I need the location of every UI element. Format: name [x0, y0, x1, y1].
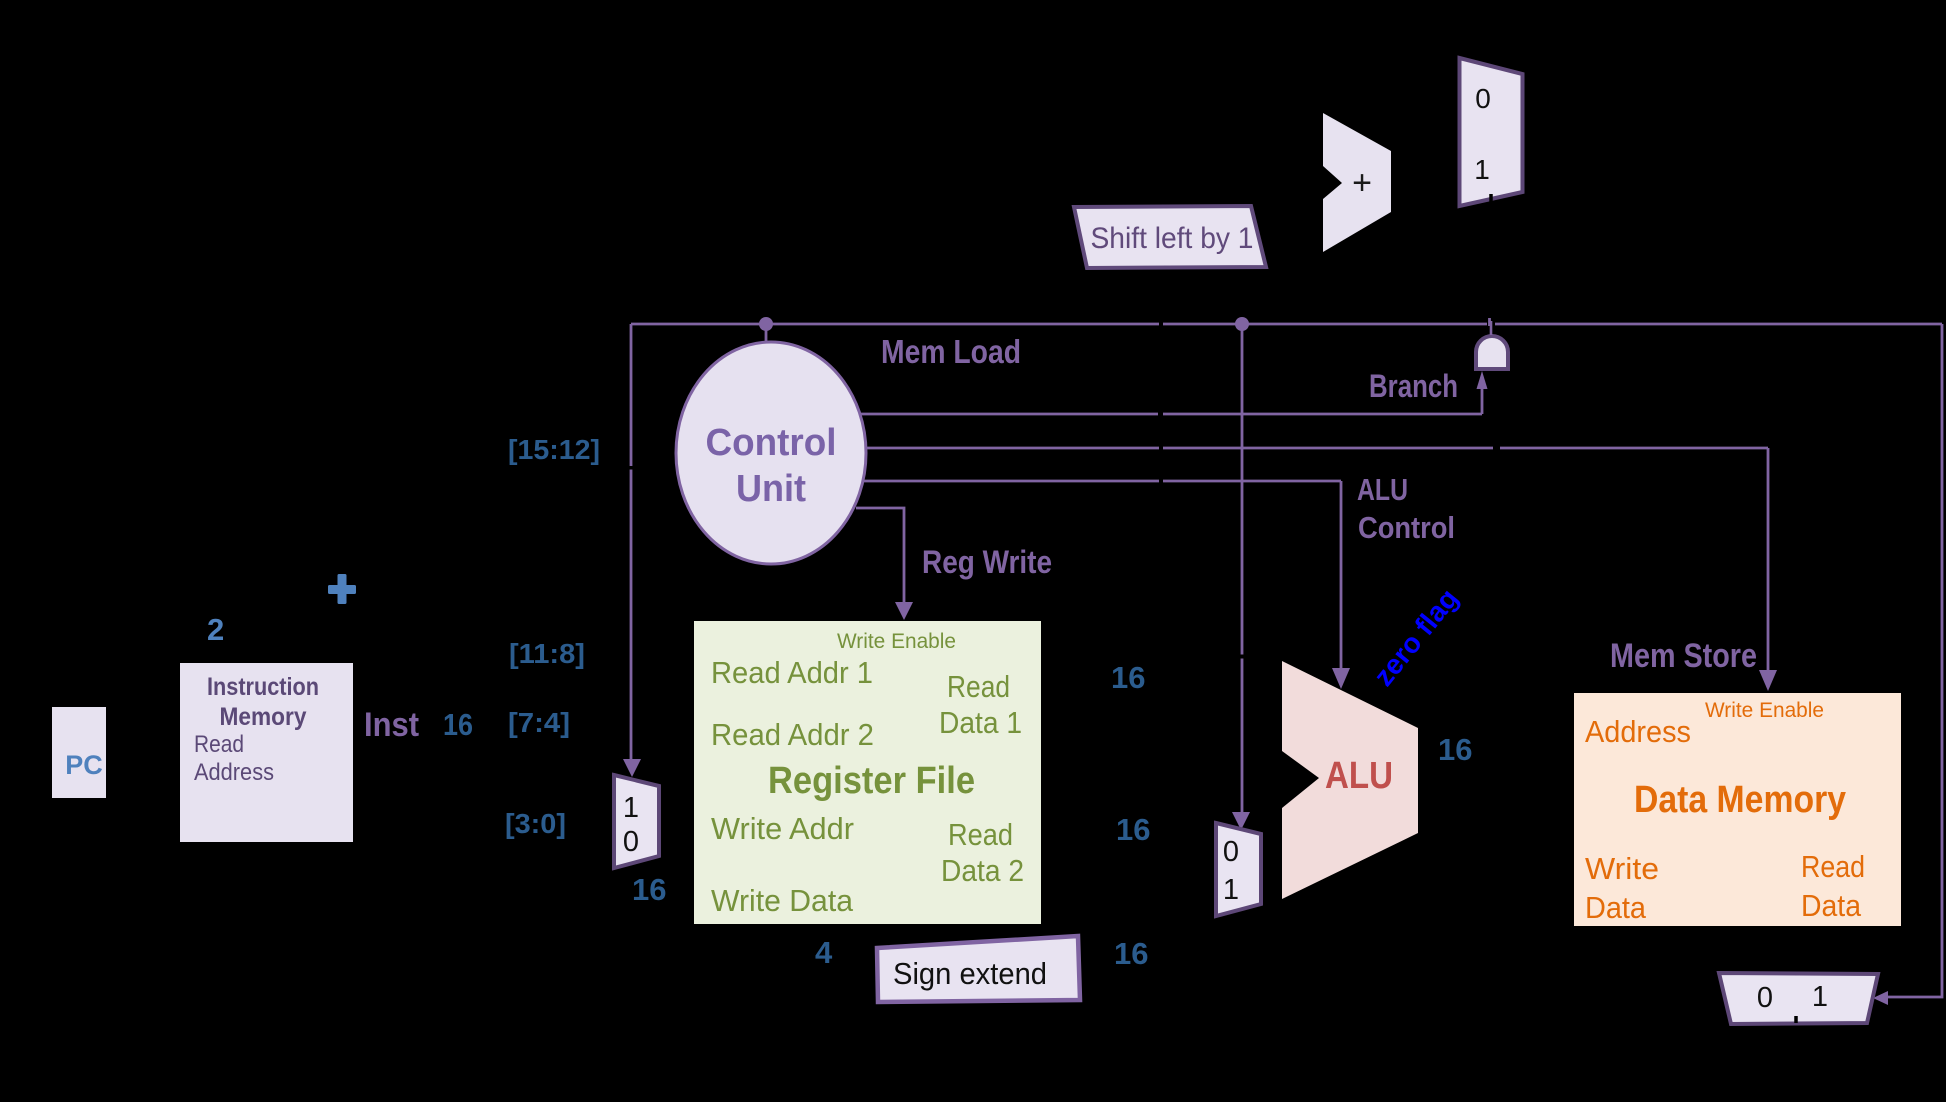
svg-text:Read: Read	[194, 731, 244, 758]
svg-text:0: 0	[623, 826, 639, 858]
svg-text:Mem Load: Mem Load	[881, 333, 1021, 370]
svg-text:0: 0	[1475, 83, 1491, 114]
svg-text:Data: Data	[1585, 890, 1647, 925]
svg-text:1: 1	[623, 792, 639, 824]
svg-text:Read: Read	[1801, 849, 1865, 884]
svg-text:Read: Read	[948, 817, 1013, 852]
svg-text:0: 0	[1757, 982, 1773, 1014]
svg-text:Register File: Register File	[768, 760, 975, 802]
svg-text:Data 2: Data 2	[941, 853, 1024, 888]
svg-text:Write Data: Write Data	[711, 883, 854, 918]
svg-text:Read: Read	[947, 669, 1010, 704]
svg-text:Read Addr 2: Read Addr 2	[711, 717, 874, 752]
svg-text:Read Addr 1: Read Addr 1	[711, 655, 873, 690]
svg-text:1: 1	[1223, 874, 1239, 906]
svg-text:Write Enable: Write Enable	[837, 630, 956, 653]
svg-text:Control: Control	[1358, 510, 1455, 545]
svg-text:16: 16	[1114, 936, 1148, 971]
svg-text:16: 16	[443, 707, 473, 742]
svg-text:Write: Write	[1585, 851, 1659, 886]
svg-text:4: 4	[815, 935, 833, 970]
svg-text:16: 16	[1438, 732, 1472, 767]
svg-text:[15:12]: [15:12]	[508, 434, 600, 465]
svg-text:[7:4]: [7:4]	[508, 707, 570, 738]
svg-text:Address: Address	[1585, 714, 1691, 749]
svg-text:1: 1	[1474, 154, 1490, 185]
svg-text:Write Enable: Write Enable	[1705, 699, 1824, 722]
svg-text:Instruction: Instruction	[207, 673, 319, 701]
svg-text:Sign extend: Sign extend	[893, 956, 1047, 991]
svg-text:PC: PC	[65, 750, 103, 780]
svg-text:1: 1	[1812, 981, 1828, 1013]
svg-text:+: +	[1352, 164, 1372, 202]
svg-text:Memory: Memory	[220, 703, 307, 731]
svg-text:16: 16	[632, 872, 666, 907]
svg-text:ALU: ALU	[1325, 755, 1393, 797]
svg-text:[3:0]: [3:0]	[505, 808, 566, 839]
svg-text:Address: Address	[194, 759, 274, 786]
svg-text:Data: Data	[1801, 888, 1862, 923]
svg-text:0: 0	[1223, 836, 1239, 868]
svg-text:2: 2	[207, 612, 224, 647]
svg-text:Shift left by 1: Shift left by 1	[1091, 222, 1254, 255]
svg-text:16: 16	[1111, 660, 1145, 695]
svg-text:Data Memory: Data Memory	[1634, 779, 1846, 821]
svg-text:Mem Store: Mem Store	[1610, 637, 1757, 675]
svg-text:Unit: Unit	[736, 468, 806, 510]
svg-text:16: 16	[1116, 812, 1150, 847]
svg-text:Inst: Inst	[364, 706, 419, 744]
svg-text:Write Addr: Write Addr	[711, 811, 854, 846]
svg-text:Reg Write: Reg Write	[922, 544, 1052, 580]
svg-text:Branch: Branch	[1369, 368, 1458, 404]
svg-text:[11:8]: [11:8]	[509, 638, 585, 669]
svg-text:ALU: ALU	[1357, 472, 1408, 507]
svg-text:Data 1: Data 1	[939, 705, 1022, 740]
svg-text:Control: Control	[706, 422, 837, 464]
